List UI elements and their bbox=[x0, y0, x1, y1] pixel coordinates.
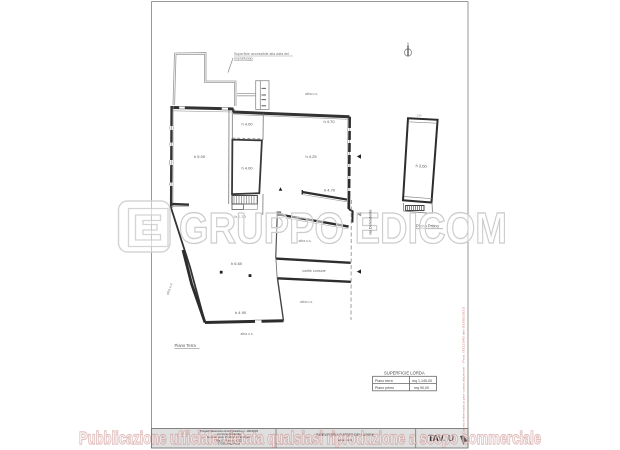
svg-text:Piano Terra: Piano Terra bbox=[175, 343, 197, 348]
svg-text:h 4.70: h 4.70 bbox=[323, 119, 335, 124]
svg-text:SUPERFICIE LORDA: SUPERFICIE LORDA bbox=[384, 371, 425, 376]
svg-text:h 6.60: h 6.60 bbox=[231, 261, 243, 266]
svg-text:altra u.s.: altra u.s. bbox=[300, 300, 313, 304]
svg-text:mq 1.145,00: mq 1.145,00 bbox=[412, 379, 432, 383]
svg-text:2.90: 2.90 bbox=[417, 115, 422, 118]
svg-text:mq 90,00: mq 90,00 bbox=[414, 386, 429, 390]
svg-text:GRUPPO EDICOM: GRUPPO EDICOM bbox=[179, 204, 507, 253]
svg-text:Piano primo: Piano primo bbox=[375, 386, 394, 390]
svg-text:h 4.70: h 4.70 bbox=[324, 187, 336, 192]
svg-text:cortile comune: cortile comune bbox=[302, 269, 325, 273]
svg-text:Pubblicazione ufficiale vietat: Pubblicazione ufficiale vietata qualsias… bbox=[79, 428, 541, 448]
svg-text:Superficie accessibile alla da: Superficie accessibile alla data del bbox=[234, 52, 289, 56]
svg-text:Copia informatica per consulta: Copia informatica per consultazione - Pr… bbox=[462, 306, 466, 434]
svg-text:h 4.90: h 4.90 bbox=[235, 310, 247, 315]
svg-text:h 4.25: h 4.25 bbox=[305, 154, 317, 159]
svg-text:h 3.00: h 3.00 bbox=[415, 163, 427, 169]
svg-text:N: N bbox=[407, 42, 409, 46]
svg-text:altra u.s.: altra u.s. bbox=[240, 332, 253, 336]
svg-text:Piano terra: Piano terra bbox=[375, 379, 393, 383]
svg-text:h 4.00: h 4.00 bbox=[241, 166, 253, 171]
svg-text:h 5.00: h 5.00 bbox=[194, 154, 206, 159]
svg-text:altra u.s.: altra u.s. bbox=[305, 92, 318, 96]
svg-text:h 4.00: h 4.00 bbox=[241, 122, 253, 127]
svg-text:via Defendente: via Defendente bbox=[369, 209, 373, 235]
svg-text:sopralluogo: sopralluogo bbox=[234, 57, 253, 61]
